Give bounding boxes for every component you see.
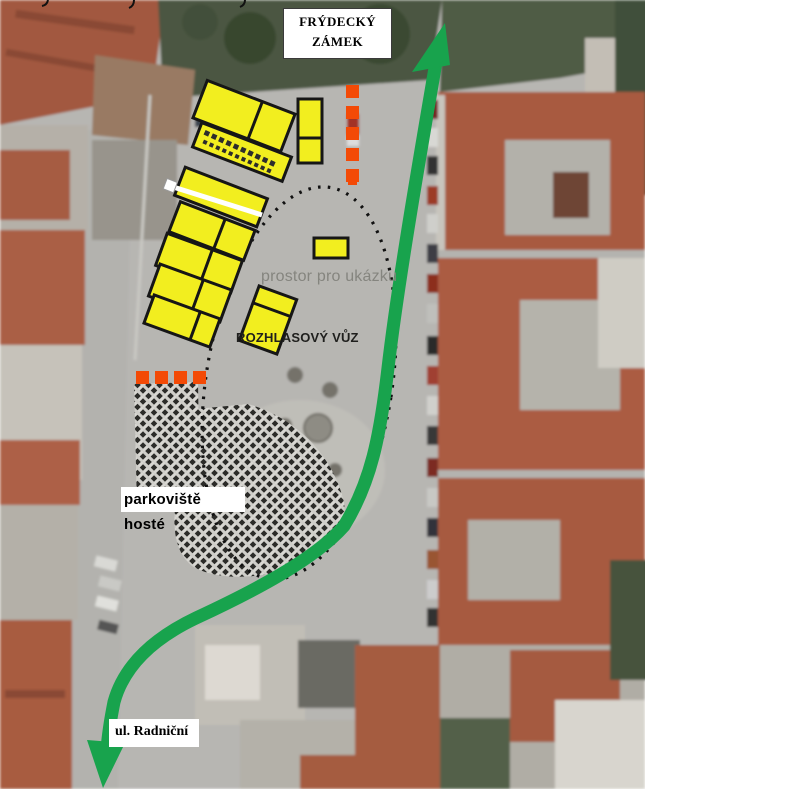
demo-area-label: prostor pro ukázku — [261, 268, 397, 286]
guest-parking-label-box: parkoviště hosté — [121, 487, 245, 512]
aerial-photo — [0, 0, 648, 789]
street-label-box: ul. Radniční — [109, 719, 199, 747]
radio-van-label: ROZHLASOVÝ VŮZ — [236, 330, 359, 345]
stall-2 — [298, 99, 322, 163]
castle-label-box: FRÝDECKÝ ZÁMEK — [283, 8, 392, 59]
event-plan-map: FRÝDECKÝ ZÁMEK prostor pro ukázku ROZHLA… — [0, 0, 800, 789]
map-graphics — [0, 0, 800, 789]
stall-9-small — [314, 238, 348, 258]
